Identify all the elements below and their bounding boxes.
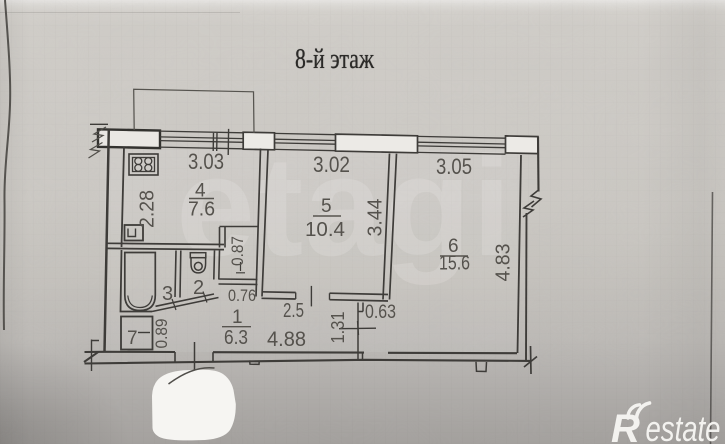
- svg-text:2: 2: [193, 277, 204, 299]
- svg-text:3.02: 3.02: [313, 152, 350, 177]
- svg-text:7: 7: [127, 328, 138, 349]
- svg-text:R: R: [611, 407, 640, 444]
- svg-text:0.63: 0.63: [365, 302, 396, 323]
- svg-text:3.44: 3.44: [365, 199, 387, 237]
- svg-text:2.5: 2.5: [283, 300, 304, 322]
- svg-text:3: 3: [162, 283, 173, 305]
- svg-text:5: 5: [321, 196, 332, 217]
- svg-text:4.83: 4.83: [493, 244, 515, 282]
- svg-text:3.03: 3.03: [188, 149, 224, 174]
- svg-text:3.05: 3.05: [436, 154, 472, 179]
- svg-text:0.76: 0.76: [228, 286, 256, 305]
- svg-text:2.28: 2.28: [137, 190, 159, 228]
- svg-text:1.31: 1.31: [328, 312, 348, 344]
- svg-text:0.89: 0.89: [152, 319, 171, 349]
- svg-text:0.87: 0.87: [228, 236, 247, 266]
- svg-text:10.4: 10.4: [305, 219, 345, 241]
- svg-text:4.88: 4.88: [267, 328, 306, 351]
- svg-text:estate: estate: [646, 408, 721, 444]
- svg-text:15.6: 15.6: [439, 253, 470, 275]
- svg-text:7.6: 7.6: [188, 199, 215, 221]
- svg-text:6.3: 6.3: [224, 327, 248, 349]
- svg-text:1: 1: [232, 307, 243, 328]
